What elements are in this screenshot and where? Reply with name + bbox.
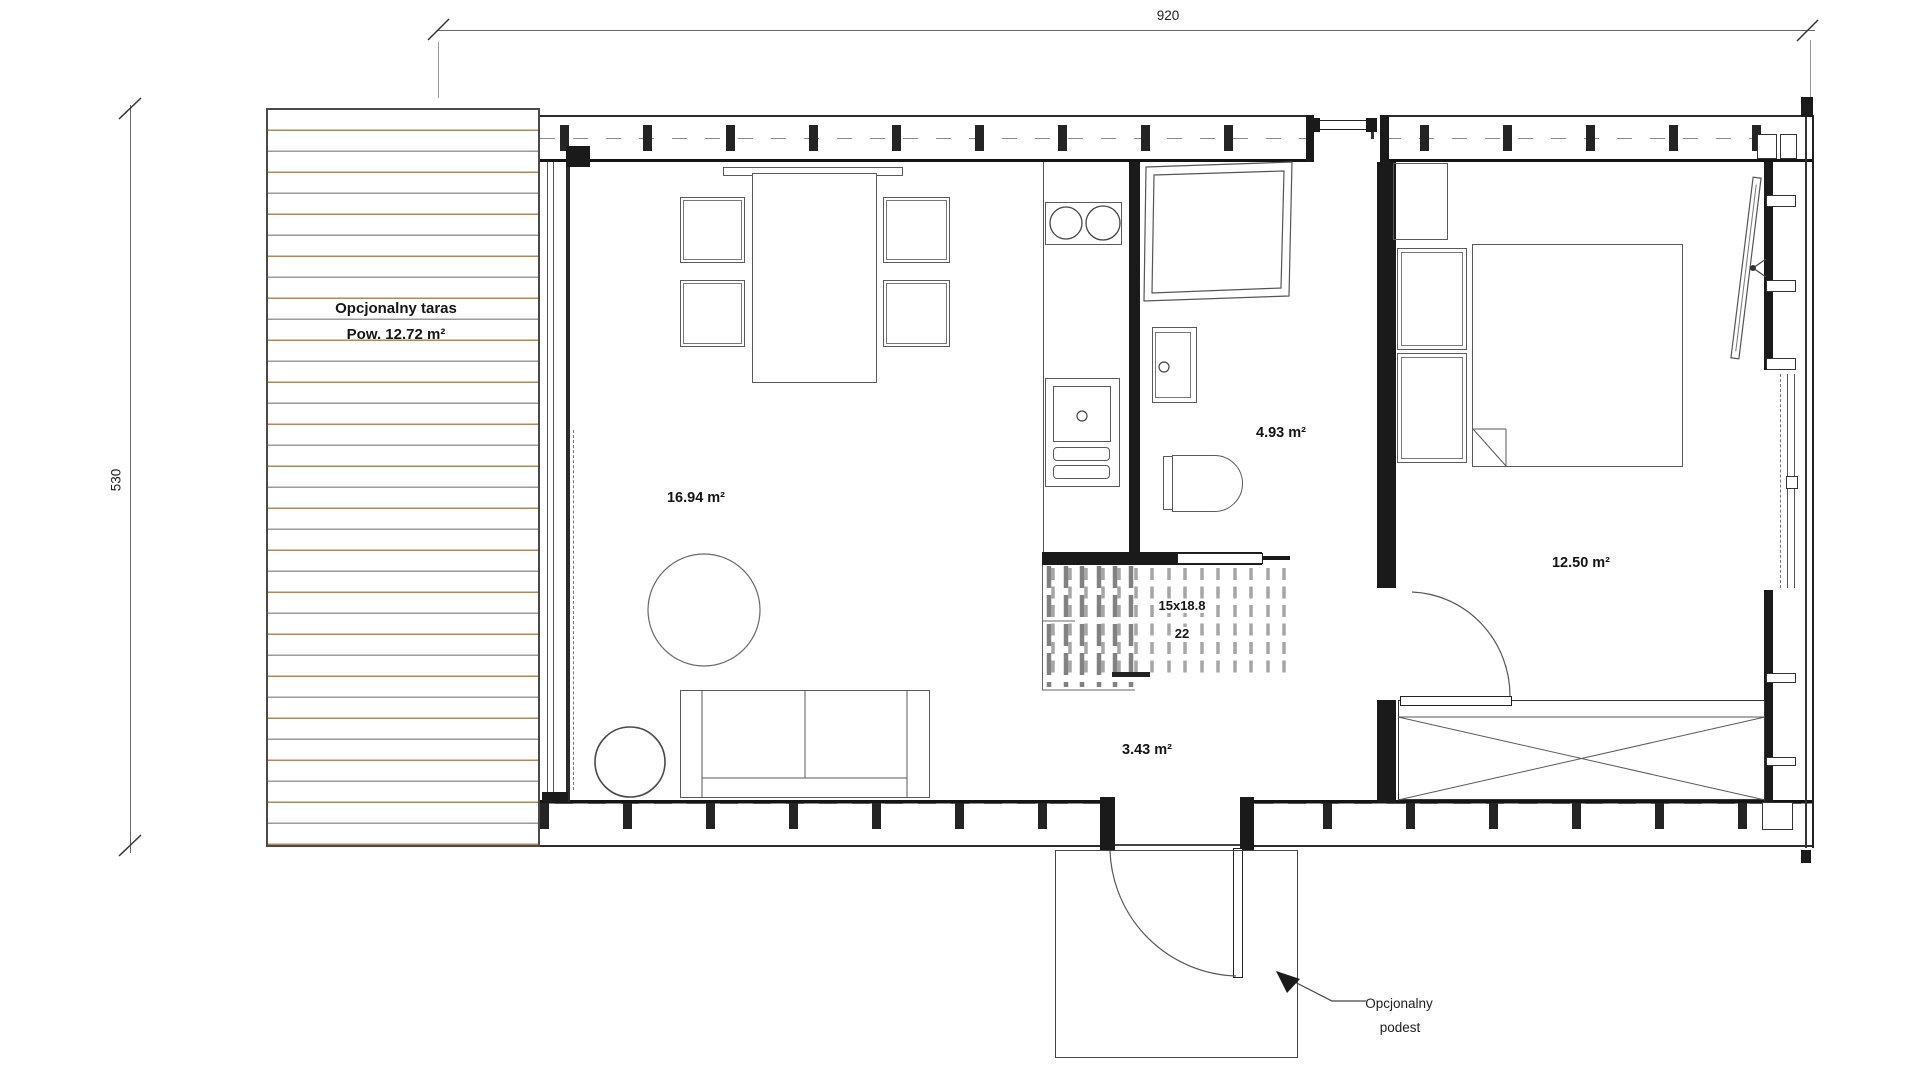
right-wall-inner-top (1764, 162, 1773, 370)
bedroom-door-leaf (1400, 696, 1512, 706)
stairs-hatch-lower-flight (1049, 566, 1131, 687)
closet-x (1398, 700, 1765, 800)
right-wall-inner-bottom (1764, 590, 1773, 802)
left-dimension-line (130, 105, 131, 853)
bed (1472, 244, 1683, 467)
shower (1144, 162, 1292, 301)
top-window-latch (1371, 132, 1374, 139)
stairs-treads-label: 15x18.8 (1157, 599, 1208, 613)
corner-top-right-b (1780, 134, 1797, 159)
bottom-wall-right-section (1240, 800, 1813, 847)
stairs-outline (1042, 565, 1135, 690)
downspout-bottom-right (1801, 850, 1811, 863)
top-dimension-ext-left (438, 42, 439, 98)
stair-nosing (1112, 672, 1150, 677)
stairs-hatch (1053, 568, 1284, 674)
right-wall-block-3 (1766, 358, 1796, 370)
bathroom-sliding-door (1177, 553, 1263, 564)
right-wall-outer (1805, 115, 1814, 848)
top-wall-right-section (1380, 115, 1813, 162)
terrace-name: Opcjonalny taras (335, 300, 457, 317)
top-wall-start-post (1380, 115, 1389, 162)
top-window-block-right (1366, 118, 1377, 132)
dining-chair-2 (680, 280, 745, 347)
dining-chair-3 (883, 197, 950, 263)
wardrobe-top-box (1393, 163, 1448, 240)
toilet-bowl (1172, 455, 1243, 512)
bottom-wall-left-section (540, 800, 1113, 847)
tv-mount (1750, 265, 1756, 271)
tv (1731, 177, 1766, 359)
right-wall-block-4 (1766, 673, 1796, 683)
top-window-block-left (1310, 118, 1320, 132)
corner-post-bottom-left (542, 792, 568, 802)
stove (1045, 202, 1122, 245)
nightstand-1 (1397, 248, 1467, 350)
right-window-dash (1780, 374, 1781, 588)
stairs-count-label: 22 (1173, 627, 1191, 641)
left-wall-window-dash (573, 430, 574, 790)
entrance-post-left (1100, 797, 1115, 850)
corner-post-top-left (566, 146, 590, 167)
hallway-area-label: 3.43 m² (1122, 742, 1172, 758)
downspout-top-right (1801, 97, 1813, 117)
corner-bottom-right (1762, 802, 1793, 830)
top-wall-left-section (540, 115, 1308, 162)
side-table (595, 727, 665, 797)
dining-table (752, 173, 877, 383)
kitchen-drawer-2 (1053, 465, 1110, 479)
bedroom-area-label: 12.50 m² (1552, 555, 1610, 571)
round-rug (648, 554, 760, 666)
right-wall-block-2 (1766, 280, 1796, 292)
floor-plan: 920 530 Opcjonalny taras Pow. 12.72 m² (0, 0, 1920, 1080)
left-dimension-label: 530 (109, 469, 124, 492)
bedroom-door-arc (1412, 592, 1510, 696)
entrance-platform (1055, 850, 1298, 1058)
washbasin-inner (1155, 332, 1191, 398)
dining-chair-4 (883, 280, 950, 347)
sofa (680, 690, 930, 798)
right-wall-block-5 (1766, 757, 1796, 766)
left-wall-inner-face (566, 160, 570, 802)
kitchen-sink-basin (1053, 386, 1111, 442)
top-dimension-line (438, 30, 1815, 31)
bedroom-wall-stub (1377, 700, 1396, 803)
bathroom-left-wall (1129, 162, 1140, 552)
nightstand-2 (1397, 353, 1467, 463)
dining-chair-1 (680, 197, 745, 263)
kitchen-drawer-1 (1053, 447, 1110, 461)
bathroom-area-label: 4.93 m² (1256, 425, 1306, 441)
living-room-area-label: 16.94 m² (667, 490, 725, 506)
entrance-threshold (1115, 844, 1240, 846)
platform-note-line2: podest (1380, 1020, 1421, 1035)
terrace-deck (266, 108, 540, 847)
terrace-area: Pow. 12.72 m² (347, 326, 446, 343)
corner-top-right-a (1757, 134, 1777, 159)
platform-note-line1: Opcjonalny (1365, 996, 1433, 1011)
right-window-sill-block (1786, 476, 1798, 489)
right-wall-block-1 (1766, 195, 1796, 207)
entrance-post-right (1240, 797, 1254, 850)
top-dimension-label: 920 (1157, 8, 1180, 23)
kitchen-counter-edge (1043, 162, 1044, 552)
bathroom-door-rail (1262, 556, 1290, 560)
left-wall-glazing-frame (547, 162, 554, 800)
